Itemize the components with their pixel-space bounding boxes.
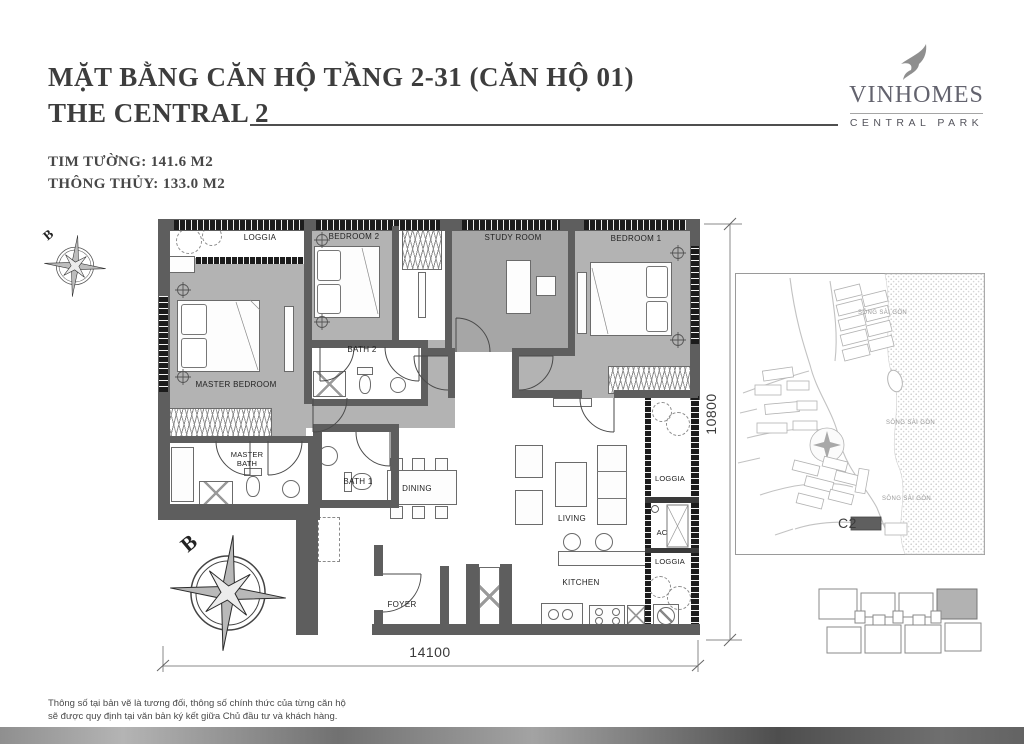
dining-chair bbox=[412, 506, 425, 519]
console-table bbox=[553, 398, 592, 407]
tall-cabinet bbox=[479, 567, 500, 626]
room-label-master-bedroom: MASTER BEDROOM bbox=[184, 380, 288, 389]
shower-bath2 bbox=[313, 371, 346, 397]
window-band bbox=[174, 220, 304, 230]
coffee-table bbox=[555, 462, 587, 507]
appliance-box bbox=[627, 605, 645, 626]
floorplan-page: MẶT BẰNG CĂN HỘ TẦNG 2-31 (CĂN HỘ 01) TH… bbox=[0, 0, 1024, 744]
sofa-cushion-line bbox=[597, 498, 627, 499]
wall-segment bbox=[448, 352, 455, 398]
window-band bbox=[691, 396, 699, 634]
wall-segment bbox=[296, 516, 318, 635]
wall-segment bbox=[374, 545, 383, 576]
wall-segment bbox=[645, 497, 699, 503]
key-plan bbox=[815, 583, 1000, 661]
stool bbox=[563, 533, 581, 551]
pillow bbox=[646, 301, 668, 332]
key-plan-unit-highlight bbox=[937, 589, 977, 619]
plant-icon bbox=[666, 412, 690, 436]
footer-line1: Thông số tại bản vẽ là tương đối, thông … bbox=[48, 697, 346, 710]
pillow bbox=[317, 250, 341, 281]
dresser-master bbox=[284, 306, 294, 372]
wall-segment bbox=[391, 432, 399, 508]
footer-disclaimer: Thông số tại bản vẽ là tương đối, thông … bbox=[48, 697, 346, 723]
room-label-dining: DINING bbox=[385, 484, 449, 493]
sink-master-bath bbox=[282, 480, 300, 498]
sink-bath2 bbox=[390, 377, 406, 393]
dimension-width: 14100 bbox=[375, 644, 485, 660]
area-net: THÔNG THỦY: 133.0 M2 bbox=[48, 176, 225, 193]
loggia-shelf bbox=[169, 256, 195, 273]
plant-icon bbox=[176, 228, 202, 254]
wall-segment bbox=[374, 610, 383, 635]
toilet-tank bbox=[244, 468, 262, 476]
study-desk bbox=[506, 260, 531, 314]
stool bbox=[595, 533, 613, 551]
dining-chair bbox=[435, 506, 448, 519]
window-band bbox=[584, 220, 686, 230]
closet-panel bbox=[418, 272, 426, 318]
sofa bbox=[597, 445, 627, 525]
footer-line2: sẽ được quy định tại văn bản ký kết giữa… bbox=[48, 710, 346, 723]
room-label-bedroom1: BEDROOM 1 bbox=[594, 234, 678, 243]
pillow bbox=[317, 284, 341, 314]
sofa-cushion-line bbox=[597, 471, 627, 472]
wall-segment bbox=[519, 390, 582, 398]
wall-segment bbox=[304, 348, 312, 404]
logo-divider bbox=[850, 113, 983, 114]
burner bbox=[612, 608, 620, 616]
key-plan-drawing bbox=[815, 583, 1000, 661]
room-label-loggia-right-bottom: LOGGIA bbox=[638, 557, 702, 566]
burner bbox=[595, 608, 603, 616]
wall-segment bbox=[392, 226, 399, 347]
wall-segment bbox=[166, 436, 316, 443]
ac-unit-icon bbox=[652, 505, 689, 547]
area-gross: TIM TƯỜNG: 141.6 M2 bbox=[48, 154, 213, 171]
compass-icon bbox=[14, 205, 137, 328]
room-label-kitchen: KITCHEN bbox=[549, 578, 613, 587]
room-label-bedroom2: BEDROOM 2 bbox=[312, 232, 396, 241]
wall-segment bbox=[308, 443, 316, 504]
wall-segment bbox=[313, 424, 399, 432]
wall-segment bbox=[445, 226, 452, 356]
room-label-bath1: BATH 1 bbox=[326, 477, 390, 486]
armchair bbox=[515, 490, 543, 525]
room-label-bath2: BATH 2 bbox=[330, 345, 394, 354]
compass-north-label: B bbox=[40, 226, 57, 244]
wall-segment bbox=[568, 226, 575, 356]
armchair bbox=[515, 445, 543, 478]
pillow bbox=[181, 304, 207, 335]
room-label-ac: AC bbox=[646, 528, 678, 537]
wall-segment bbox=[304, 226, 312, 348]
compass-north-label: B bbox=[176, 529, 203, 557]
dimension-height: 10800 bbox=[703, 369, 719, 459]
window-band bbox=[316, 220, 440, 230]
bottom-gradient-bar bbox=[0, 727, 1024, 744]
toilet-bath2 bbox=[359, 375, 371, 394]
logo-division-text: CENTRAL PARK bbox=[848, 117, 985, 129]
river-label: SÔNG SÀI GÒN bbox=[882, 496, 931, 502]
wall-segment bbox=[512, 348, 575, 356]
room-label-loggia-right-top: LOGGIA bbox=[638, 474, 702, 483]
room-label-study: STUDY ROOM bbox=[470, 233, 556, 242]
window-band bbox=[691, 246, 699, 344]
page-title: MẶT BẰNG CĂN HỘ TẦNG 2-31 (CĂN HỘ 01) bbox=[48, 62, 634, 93]
floor-passage bbox=[455, 352, 512, 398]
vinhomes-logo: VINHOMES CENTRAL PARK bbox=[848, 42, 985, 129]
wall-segment bbox=[313, 500, 399, 508]
dresser-bedroom1 bbox=[577, 272, 587, 334]
window-band bbox=[159, 296, 168, 392]
wall-segment bbox=[614, 390, 698, 398]
wall-segment bbox=[645, 548, 699, 553]
river-label: SÔNG SÀI GÒN bbox=[886, 420, 935, 426]
bird-icon bbox=[848, 42, 985, 82]
floor-bath1 bbox=[322, 432, 391, 500]
study-chair bbox=[536, 276, 556, 296]
sink-bowl bbox=[548, 609, 559, 620]
wall-segment bbox=[440, 566, 449, 635]
shaft-box bbox=[318, 517, 340, 562]
wall-segment bbox=[372, 624, 700, 635]
wall-segment bbox=[312, 399, 428, 406]
logo-brand-text: VINHOMES bbox=[848, 82, 985, 109]
wall-segment bbox=[512, 352, 519, 398]
vanity-master-bath bbox=[171, 447, 194, 502]
wall-segment bbox=[158, 504, 320, 520]
sink-bowl bbox=[562, 609, 573, 620]
wall-segment bbox=[466, 564, 479, 626]
river-label: SÔNG SÀI GÒN bbox=[858, 310, 907, 316]
plant-icon bbox=[667, 586, 691, 610]
window-band bbox=[462, 220, 560, 230]
wall-segment bbox=[500, 564, 512, 626]
room-label-foyer: FOYER bbox=[370, 600, 434, 609]
room-label-loggia-top: LOGGIA bbox=[218, 233, 302, 242]
shower-master-bath bbox=[199, 481, 233, 505]
pillow bbox=[181, 338, 207, 368]
kitchen-island bbox=[558, 551, 648, 566]
page-subtitle: THE CENTRAL 2 bbox=[48, 98, 269, 129]
washer-drum bbox=[657, 607, 675, 625]
loggia-rail bbox=[196, 257, 308, 264]
toilet-master-bath bbox=[246, 476, 260, 497]
toilet-tank bbox=[357, 367, 373, 375]
title-underline bbox=[250, 124, 838, 126]
pillow bbox=[646, 266, 668, 298]
closet-hatch bbox=[402, 228, 442, 270]
room-label-master-bath: MASTER BATH bbox=[224, 450, 270, 468]
window-band bbox=[645, 396, 651, 634]
site-map-building-label: C2 bbox=[838, 515, 857, 531]
room-label-living: LIVING bbox=[540, 514, 604, 523]
